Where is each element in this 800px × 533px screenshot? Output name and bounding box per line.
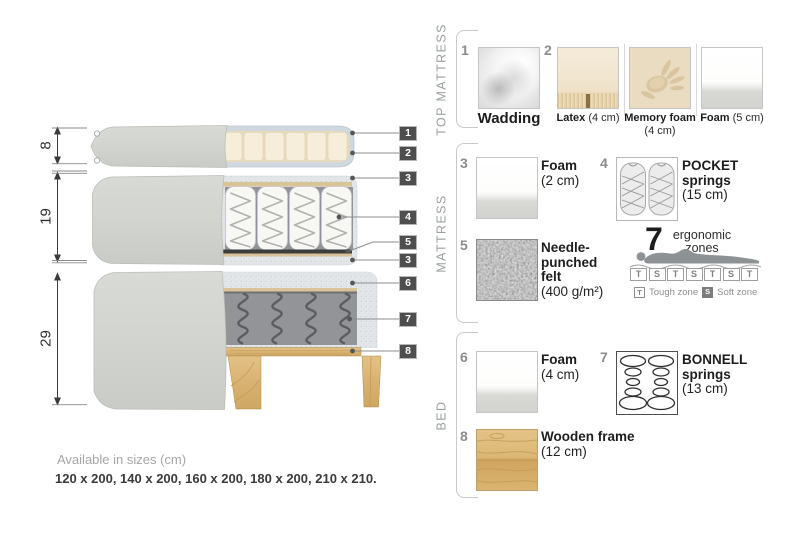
latex-slit — [586, 94, 590, 108]
zone-box: T — [704, 268, 721, 281]
wooden-frame-caption: Wooden frame (12 cm) — [541, 430, 661, 459]
bonnell-springs-image — [616, 351, 678, 415]
needle-felt-caption: Needle-punched felt (400 g/m²) — [541, 241, 621, 299]
dimension-label-19: 19 — [38, 200, 53, 234]
legend-num-8: 8 — [460, 428, 468, 444]
bonnell-springs-caption: BONNELL springs (13 cm) — [682, 353, 758, 397]
callout-chip-8: 8 — [399, 344, 417, 359]
zone-box: T — [667, 268, 684, 281]
divider — [696, 44, 697, 116]
ergonomic-zone-strip: T S T S T S T — [630, 268, 758, 281]
mattress-handle-button — [94, 158, 99, 163]
callout-chip-1: 1 — [399, 126, 417, 141]
legend-num-1: 1 — [461, 42, 469, 58]
latex-caption: Latex (4 cm) — [549, 112, 627, 125]
latex-image — [557, 47, 619, 109]
foam-5cm-image — [701, 47, 763, 109]
foam-5cm-caption: Foam (5 cm) — [693, 112, 771, 125]
tough-zone-label: Tough zone — [649, 287, 698, 298]
soft-zone-key: S — [702, 287, 713, 298]
zone-legend: T Tough zone S Soft zone — [634, 287, 757, 298]
callout-chip-3: 3 — [399, 171, 417, 186]
pocket-springs-caption: POCKET springs (15 cm) — [682, 159, 758, 203]
legend-num-7: 7 — [600, 349, 608, 365]
zone-box: S — [649, 268, 666, 281]
section-title-mattress: MATTRESS — [435, 174, 450, 294]
zone-box: T — [741, 268, 758, 281]
memory-foam-image — [629, 47, 691, 109]
section-title-bed: BED — [435, 356, 450, 476]
legend-num-5: 5 — [460, 237, 468, 253]
available-sizes-values: 120 x 200, 140 x 200, 160 x 200, 180 x 2… — [55, 471, 377, 486]
wooden-frame-image — [476, 429, 538, 491]
callout-chip-6: 6 — [399, 276, 417, 291]
bed-base-section — [94, 272, 381, 410]
foam-4cm-image — [476, 351, 538, 413]
section-title-top-mattress: TOP MATTRESS — [435, 20, 450, 140]
wadding-caption: Wadding — [459, 110, 559, 127]
callout-chip-2: 2 — [399, 146, 417, 161]
memory-foam-caption: Memory foam (4 cm) — [624, 112, 696, 137]
legend-num-2: 2 — [544, 42, 552, 58]
wadding-image — [478, 47, 540, 109]
mattress-section — [93, 176, 358, 266]
legend-num-6: 6 — [460, 349, 468, 365]
legend-num-3: 3 — [460, 155, 468, 171]
mattress-construction-infographic: 8 19 29 1 2 3 4 5 3 6 7 8 TOP MATTRESS M… — [0, 0, 800, 533]
mattress-handle-button — [94, 131, 99, 136]
zone-box: T — [630, 268, 647, 281]
divider — [624, 44, 625, 116]
zone-box: S — [686, 268, 703, 281]
needle-felt-image — [476, 239, 538, 301]
top-mattress-section — [91, 126, 354, 168]
callout-chip-7: 7 — [399, 312, 417, 327]
sleeping-person-icon — [628, 244, 763, 268]
dimension-label-8: 8 — [38, 129, 53, 163]
dimension-arrows — [52, 128, 87, 405]
callout-chip-5: 5 — [399, 235, 417, 250]
soft-zone-label: Soft zone — [717, 287, 757, 298]
available-sizes-label: Available in sizes (cm) — [57, 452, 186, 467]
bed-cross-section-diagram — [30, 105, 420, 425]
legend-num-4: 4 — [600, 155, 608, 171]
callout-chip-4: 4 — [399, 210, 417, 225]
wooden-frame-drawing — [222, 348, 381, 410]
callout-chip-3b: 3 — [399, 253, 417, 268]
dimension-label-29: 29 — [38, 322, 53, 356]
zone-box: S — [723, 268, 740, 281]
pocket-springs-image — [616, 157, 678, 221]
tough-zone-key: T — [634, 287, 645, 298]
foam-2cm-image — [476, 157, 538, 219]
